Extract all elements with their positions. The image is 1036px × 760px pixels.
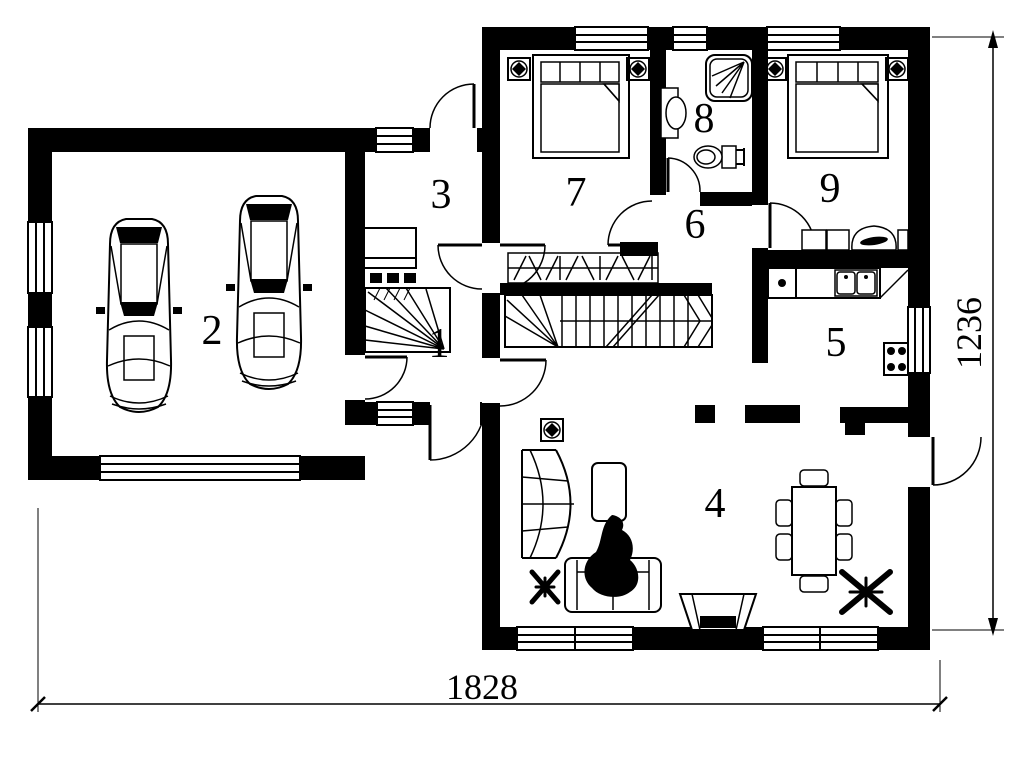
window-garage-west-2 (28, 327, 52, 397)
kitchen-sink (835, 270, 877, 296)
entry-radiator (370, 273, 416, 283)
window-room7-north (575, 27, 648, 50)
chair-left-1 (776, 500, 792, 526)
wall-living-north-2 (745, 405, 800, 423)
coffee-table (592, 463, 626, 521)
plant-living-left (532, 572, 558, 602)
room-label-4: 4 (705, 481, 726, 527)
room-label-3: 3 (431, 172, 452, 218)
wall-garage-west (28, 128, 52, 480)
bed-room9 (788, 55, 888, 158)
opening-front-door (430, 128, 477, 152)
room-label-5: 5 (826, 320, 847, 366)
floor-plan-drawing: 1 2 3 4 5 6 7 8 9 1828 1236 (0, 0, 1036, 760)
wall-living-north-return (845, 407, 865, 435)
room-label-7: 7 (566, 170, 587, 216)
window-garage-west-1 (28, 222, 52, 293)
window-living-south-2 (763, 627, 878, 650)
wall-main-west (482, 27, 500, 650)
opening-back-door (430, 402, 480, 425)
room-label-2: 2 (202, 308, 223, 354)
window-room8-north (673, 27, 707, 50)
window-hall1-south (377, 402, 413, 425)
toilet-icon (694, 146, 744, 168)
shower-icon (706, 55, 752, 101)
window-living-south-1 (517, 627, 633, 650)
opening-garage-door (345, 355, 365, 400)
window-kitchen-east (908, 307, 930, 373)
window-entry-north (376, 128, 413, 152)
chair-left-2 (776, 534, 792, 560)
window-garage-south (100, 456, 300, 480)
floor-plan-page: 1 2 3 4 5 6 7 8 9 1828 1236 (0, 0, 1036, 760)
entry-closet (364, 228, 416, 268)
wall-room8-room9 (752, 50, 768, 205)
stove-icon (884, 343, 908, 375)
opening-living-door (482, 358, 500, 403)
wall-stair-edge (500, 283, 712, 295)
window-room9-north (767, 27, 840, 50)
room-label-6: 6 (685, 202, 706, 248)
room-label-9: 9 (820, 166, 841, 212)
opening-terrace-door (908, 437, 930, 487)
wall-bath-south (700, 192, 752, 206)
opening-hall-double-door (482, 243, 500, 293)
chair-top (800, 470, 828, 486)
wall-room9-kitchen (752, 250, 908, 268)
plant-living-right (842, 572, 890, 612)
chair-right-2 (836, 534, 852, 560)
tv-stand (680, 594, 756, 630)
chair-bottom (800, 576, 828, 592)
bed-room7 (533, 55, 629, 158)
tv-icon (700, 616, 736, 628)
wall-living-north-1 (695, 405, 715, 423)
dining-table (792, 487, 836, 575)
dimension-width-label: 1828 (446, 667, 518, 707)
dimension-height-label: 1236 (949, 297, 989, 369)
room-label-8: 8 (694, 96, 715, 142)
chair-right-1 (836, 500, 852, 526)
room-label-1: 1 (429, 321, 450, 367)
